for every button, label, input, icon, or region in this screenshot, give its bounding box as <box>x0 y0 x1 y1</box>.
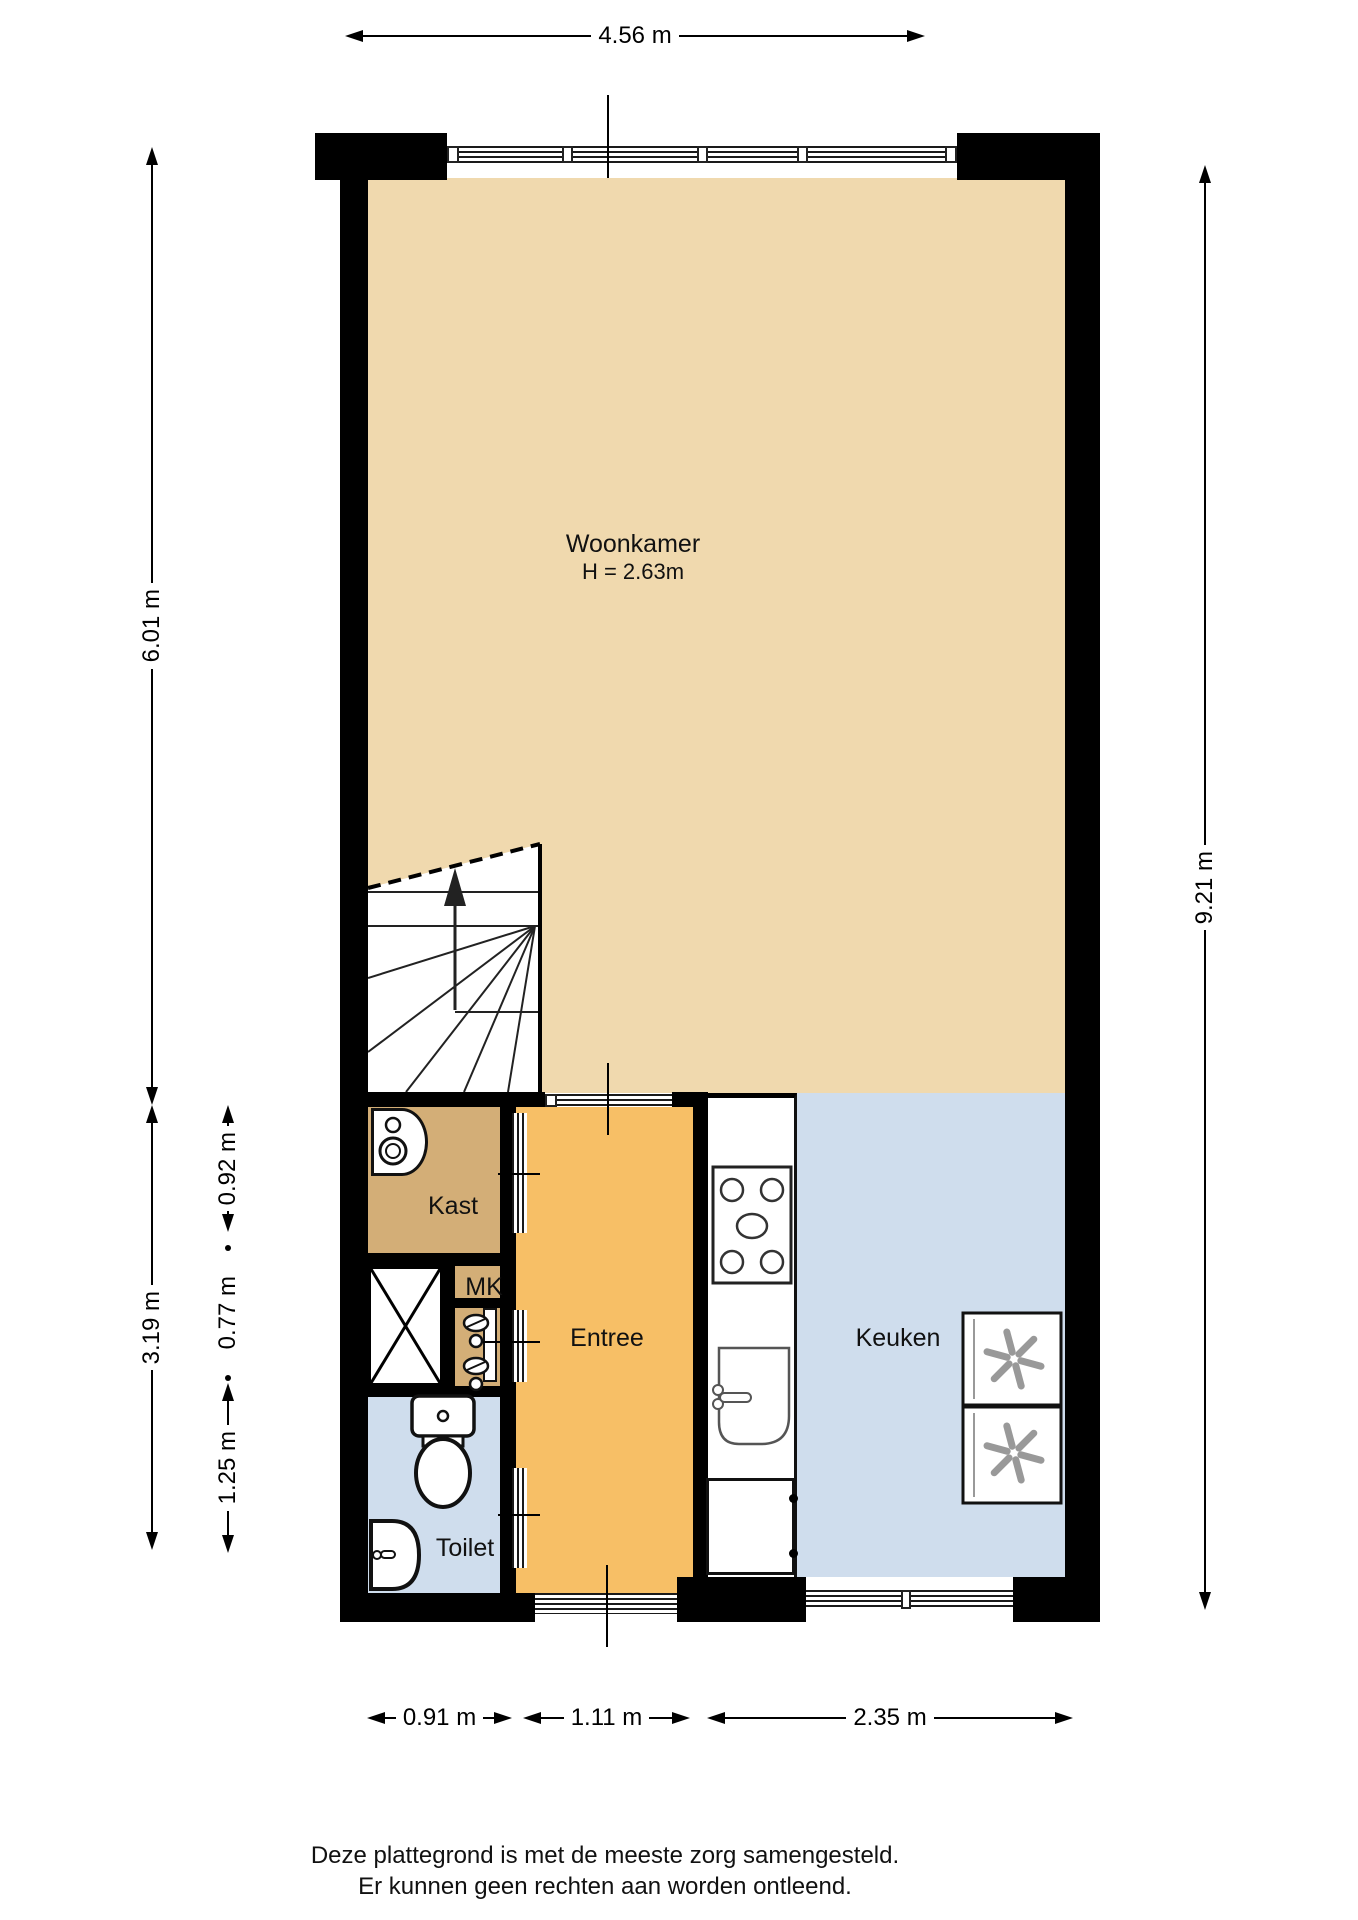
dim-left-upper-label: 6.01 m <box>138 589 166 662</box>
livingroom-entree-door-tick <box>607 1063 609 1135</box>
top-window-mullion-3 <box>797 146 808 163</box>
arrow-up-icon <box>146 147 158 165</box>
dimension-bottom-keuken: 2.35 m <box>707 1705 1073 1731</box>
woonkamer-name: Woonkamer <box>483 530 783 559</box>
arrow-down-icon <box>146 1532 158 1550</box>
door-hinge-dot <box>789 1549 798 1558</box>
toilet-door-tick <box>498 1514 540 1516</box>
arrow-up-icon <box>1199 165 1211 183</box>
dimension-top-width: 4.56 m <box>345 23 925 49</box>
arrow-down-icon <box>222 1535 234 1553</box>
arrow-left-icon <box>707 1712 725 1724</box>
disclaimer: Deze plattegrond is met de meeste zorg s… <box>205 1840 1005 1902</box>
arrow-left-icon <box>367 1712 385 1724</box>
top-window-center-tick <box>607 95 609 178</box>
arrow-right-icon <box>1055 1712 1073 1724</box>
wall-bottom-left <box>340 1593 535 1622</box>
dim-bottom-entree-label: 1.11 m <box>571 1704 643 1732</box>
arrow-right-icon <box>494 1712 512 1724</box>
dim-mk-label: 0.77 m <box>214 1276 242 1349</box>
door-hinge-dot <box>789 1494 798 1503</box>
top-window-mullion-1 <box>562 146 573 163</box>
arrow-right-icon <box>907 30 925 42</box>
dim-bottom-toilet-label: 0.91 m <box>403 1704 476 1732</box>
dimension-bottom-entree: 1.11 m <box>523 1705 690 1731</box>
dim-top-label: 4.56 m <box>598 22 671 50</box>
arrow-down-icon <box>1199 1592 1211 1610</box>
livingroom-entree-door-jamb <box>545 1094 557 1107</box>
livingroom-entree-door-icon <box>557 1094 672 1107</box>
dimension-toilet-depth: 1.25 m <box>215 1383 241 1553</box>
arrow-up-icon <box>222 1105 234 1123</box>
disclaimer-line-2: Er kunnen geen rechten aan worden ontlee… <box>205 1871 1005 1902</box>
wall-kast-bottom <box>368 1253 502 1266</box>
woonkamer-ceiling-height: H = 2.63m <box>483 559 783 584</box>
kitchen-door-leaf <box>706 1478 795 1575</box>
arrow-up-icon <box>222 1383 234 1401</box>
arrow-up-icon <box>146 1105 158 1123</box>
shaft-cross-icon <box>368 1266 443 1386</box>
dim-dot <box>225 1245 231 1251</box>
dim-bottom-keuken-label: 2.35 m <box>853 1704 926 1732</box>
toilet-icon <box>408 1392 478 1512</box>
arrow-left-icon <box>523 1712 541 1724</box>
wall-right <box>1065 178 1100 1622</box>
arrow-down-icon <box>146 1087 158 1105</box>
wall-top-left <box>315 133 447 180</box>
arrow-down-icon <box>222 1214 234 1232</box>
label-keuken: Keuken <box>818 1324 978 1353</box>
disclaimer-line-1: Deze plattegrond is met de meeste zorg s… <box>205 1840 1005 1871</box>
arrow-left-icon <box>345 30 363 42</box>
label-toilet: Toilet <box>395 1534 535 1563</box>
stairs-up-icon <box>368 840 545 1092</box>
kitchen-sink-icon <box>711 1346 795 1450</box>
top-window-jamb-right <box>945 146 957 163</box>
stove-4-burner-icon <box>711 1165 793 1285</box>
dim-left-lower-label: 3.19 m <box>138 1291 166 1364</box>
top-window-mullion-2 <box>697 146 708 163</box>
label-kast: Kast <box>393 1192 513 1221</box>
label-entree: Entree <box>527 1324 687 1353</box>
dim-toilet-label: 1.25 m <box>214 1431 242 1504</box>
front-door-tick <box>606 1565 608 1647</box>
dim-kast-label: 0.92 m <box>214 1132 242 1205</box>
electric-meter-icon <box>460 1310 494 1402</box>
wall-stairs-bottom <box>368 1092 545 1107</box>
label-mk: MK <box>444 1273 524 1302</box>
dimension-left-lower-total: 3.19 m <box>139 1105 165 1550</box>
dim-right-label: 9.21 m <box>1191 851 1219 924</box>
wall-bottom-right <box>1013 1577 1100 1622</box>
dim-dot <box>225 1375 231 1381</box>
floorplan-canvas: Woonkamer H = 2.63m Kast MK Entree Toile… <box>0 0 1358 1920</box>
wall-left <box>340 178 368 1622</box>
top-window-jamb-left <box>447 146 459 163</box>
washing-machine-icon <box>371 1108 428 1176</box>
arrow-right-icon <box>672 1712 690 1724</box>
dimension-right-height: 9.21 m <box>1192 165 1218 1610</box>
dimension-bottom-toilet: 0.91 m <box>367 1705 512 1731</box>
mk-door-icon <box>512 1310 527 1382</box>
label-woonkamer: Woonkamer H = 2.63m <box>483 530 783 584</box>
dimension-left-upper: 6.01 m <box>139 147 165 1105</box>
dimension-mk-depth: 0.77 m <box>215 1243 241 1383</box>
kast-door-tick <box>498 1173 540 1175</box>
wall-top-right <box>957 133 1100 180</box>
wall-bottom-middle <box>677 1577 806 1622</box>
dimension-kast-depth: 0.92 m <box>215 1105 241 1232</box>
kitchen-window-mullion <box>901 1590 911 1609</box>
